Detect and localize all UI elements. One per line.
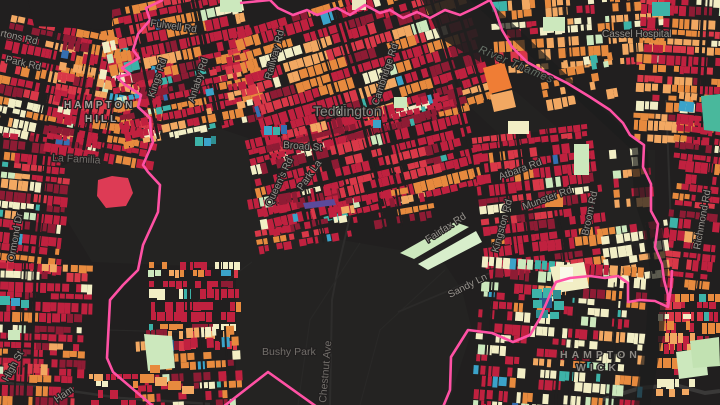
svg-text:HILL: HILL	[85, 114, 119, 125]
svg-text:Teddington: Teddington	[313, 103, 382, 119]
svg-text:Cassel Hospital: Cassel Hospital	[602, 29, 671, 40]
svg-text:HAMPTON: HAMPTON	[64, 100, 135, 111]
svg-text:Bushy Park: Bushy Park	[262, 346, 316, 358]
svg-text:WICK: WICK	[576, 362, 620, 374]
svg-text:La Familia: La Familia	[52, 152, 101, 167]
svg-text:HAMPTON: HAMPTON	[560, 349, 641, 361]
